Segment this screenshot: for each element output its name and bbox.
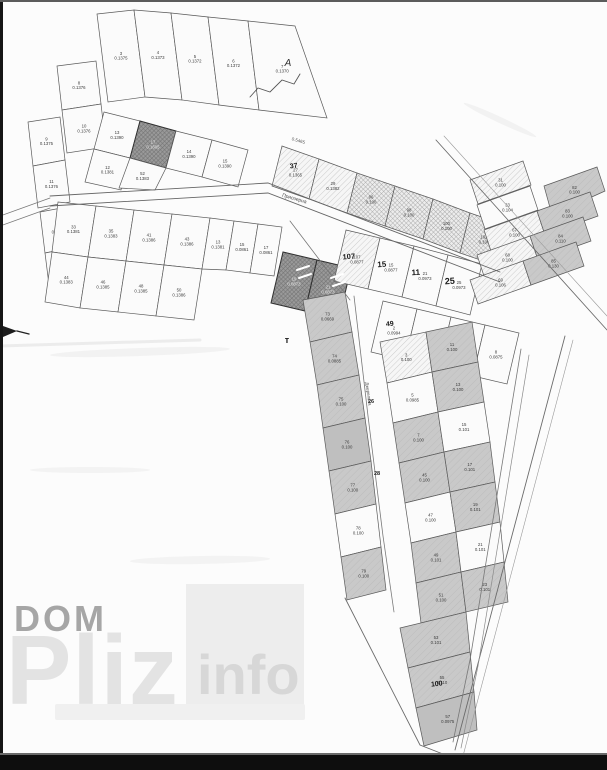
plot-50: 500.1386 xyxy=(156,265,202,320)
scan-blob xyxy=(30,467,150,473)
map-label: 11 xyxy=(411,268,421,278)
map-label: 25 xyxy=(444,276,455,287)
map-label: А xyxy=(284,58,292,69)
plot-11: 110.1376 xyxy=(33,160,70,208)
land-plots-layer: 30.137540.137350.137260.137270.137080.13… xyxy=(28,10,605,746)
map-label: 107 xyxy=(342,251,355,261)
map-label: 26 xyxy=(368,399,374,405)
north-arrow-marker xyxy=(3,326,17,337)
scan-edge-left-bar xyxy=(0,0,3,768)
map-label: 49 xyxy=(386,321,395,329)
scan-blob xyxy=(50,345,230,359)
plot-8: 80.1376 xyxy=(57,61,101,110)
road-or-boundary-line xyxy=(17,331,29,334)
plot-9: 90.1375 xyxy=(28,117,65,166)
map-label: т xyxy=(285,335,290,345)
map-label: 15 xyxy=(377,260,387,270)
plot-7: 70.1370 xyxy=(248,21,327,118)
map-label: 0.5465 xyxy=(291,136,306,145)
map-label: 100 xyxy=(431,680,443,688)
scan-blob xyxy=(462,100,537,139)
scanned-cadastral-map-page: { "watermark": { "line1": "DOM", "line2"… xyxy=(0,0,607,768)
cadastral-map-svg: 30.137540.137350.137260.137270.137080.13… xyxy=(0,0,607,768)
scan-edge-bottom-bar xyxy=(0,753,607,770)
scan-blob xyxy=(130,555,270,565)
road-or-boundary-line xyxy=(0,340,200,346)
scan-edge-top-line xyxy=(0,0,607,2)
map-label: 28 xyxy=(374,471,380,477)
map-label: 37 xyxy=(289,162,298,170)
